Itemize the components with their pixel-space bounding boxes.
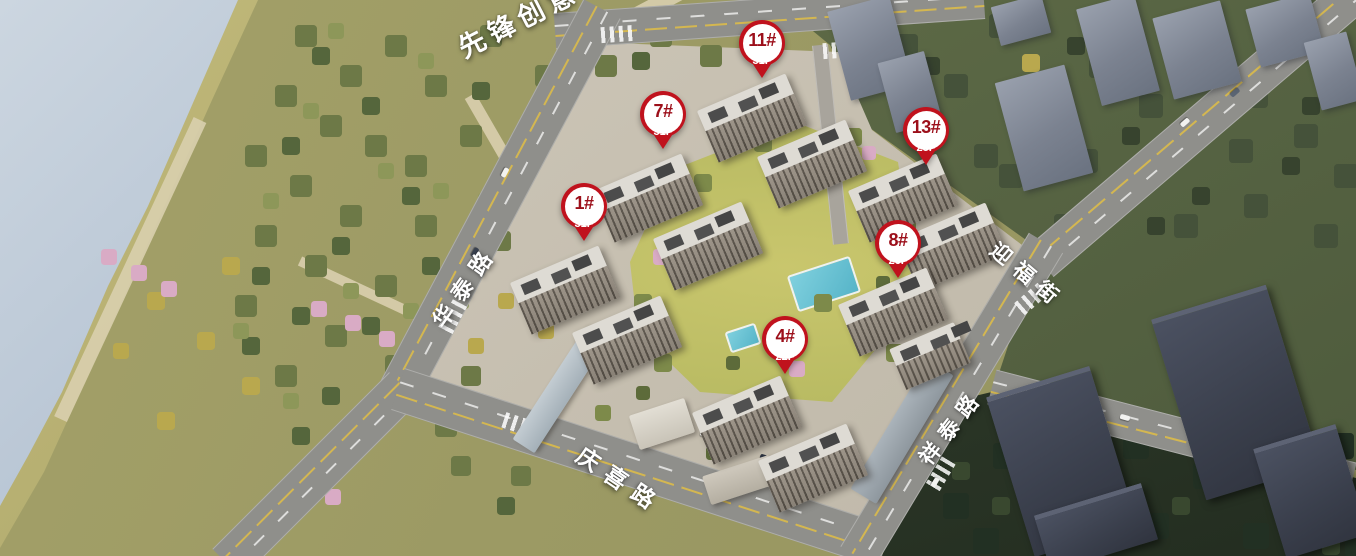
building-floor-count: 28F bbox=[903, 143, 949, 154]
building-marker[interactable]: 4# 22F bbox=[762, 316, 808, 376]
building-marker[interactable]: 1# 31F bbox=[561, 183, 607, 243]
crosswalk bbox=[600, 25, 635, 43]
building-floor-count: 31F bbox=[561, 219, 607, 230]
building-number: 4# bbox=[775, 327, 794, 352]
building-number: 8# bbox=[888, 231, 907, 256]
building-marker[interactable]: 11# 31F bbox=[739, 20, 785, 80]
building-marker[interactable]: 13# 28F bbox=[903, 107, 949, 167]
building-floor-count: 22F bbox=[762, 352, 808, 363]
building-floor-count: 31F bbox=[739, 56, 785, 67]
building-number: 1# bbox=[574, 194, 593, 219]
building-floor-count: 26F bbox=[875, 256, 921, 267]
building-number: 11# bbox=[748, 31, 776, 56]
cherry-blossom-trees bbox=[0, 0, 2, 2]
building-marker[interactable]: 8# 26F bbox=[875, 220, 921, 280]
road-huatai-south bbox=[212, 372, 418, 556]
building-number: 7# bbox=[653, 102, 672, 127]
building-marker[interactable]: 7# 31F bbox=[640, 91, 686, 151]
building-number: 13# bbox=[912, 118, 941, 143]
aerial-site-plan: 华泰路 迎福街 祥泰路 庆喜路 先锋创意 1# 31F 4# 22F bbox=[0, 0, 1356, 556]
building-floor-count: 31F bbox=[640, 127, 686, 138]
